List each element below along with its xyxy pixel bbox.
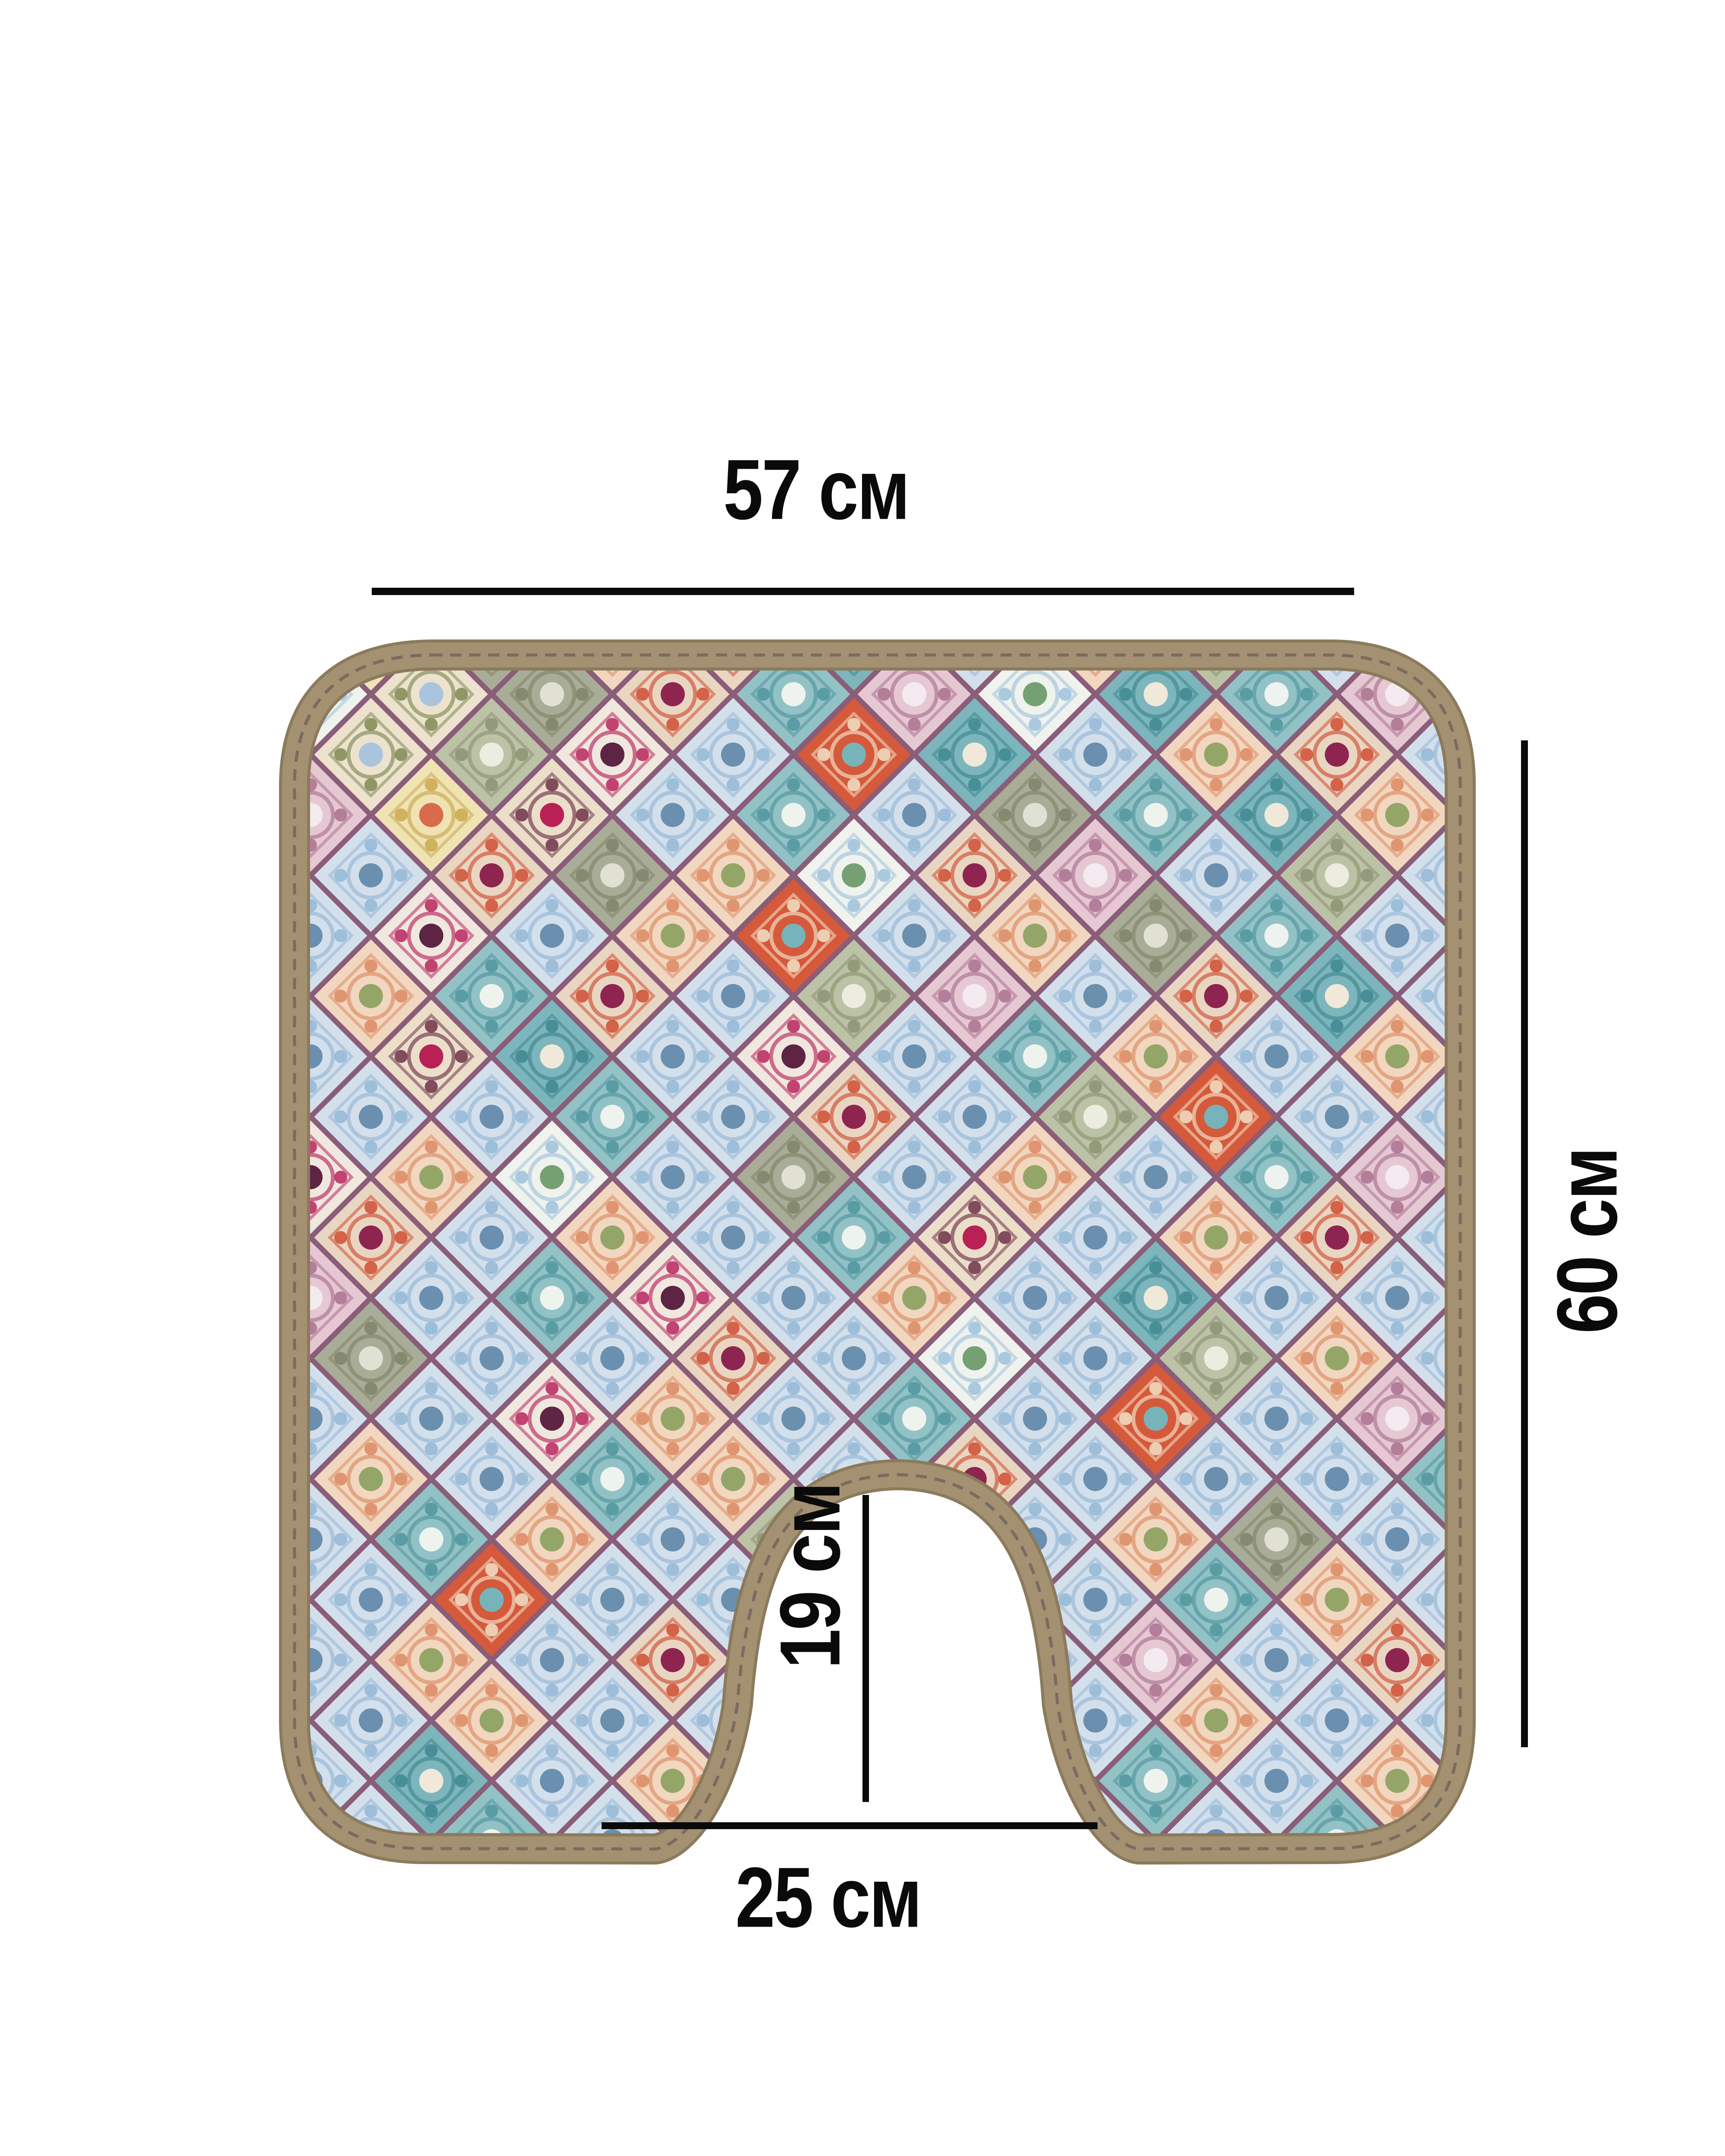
patchwork-tile — [190, 1781, 310, 1902]
height-dimension-line — [1521, 740, 1528, 1747]
width-dimension-line — [372, 588, 1354, 595]
cutout-width-dimension-line — [602, 1822, 1098, 1829]
cutout-depth-dimension-label: 19 см — [761, 1483, 859, 1669]
height-dimension-label: 60 см — [1538, 1148, 1636, 1334]
cutout-depth-dimension-line — [862, 1495, 869, 1802]
patchwork-tiles — [190, 573, 1518, 1902]
width-dimension-label: 57 см — [723, 441, 909, 539]
patchwork-tile — [914, 1660, 1035, 1781]
product-dimension-diagram: 57 см 60 см 19 см 25 см — [0, 0, 1725, 2156]
patchwork-tile — [190, 573, 310, 694]
bath-mat-photo — [0, 0, 1725, 2156]
patchwork-tile — [854, 1600, 975, 1720]
patchwork-tile — [914, 1781, 1035, 1902]
patchwork-tile — [793, 1660, 914, 1781]
cutout-width-dimension-label: 25 см — [735, 1849, 921, 1946]
